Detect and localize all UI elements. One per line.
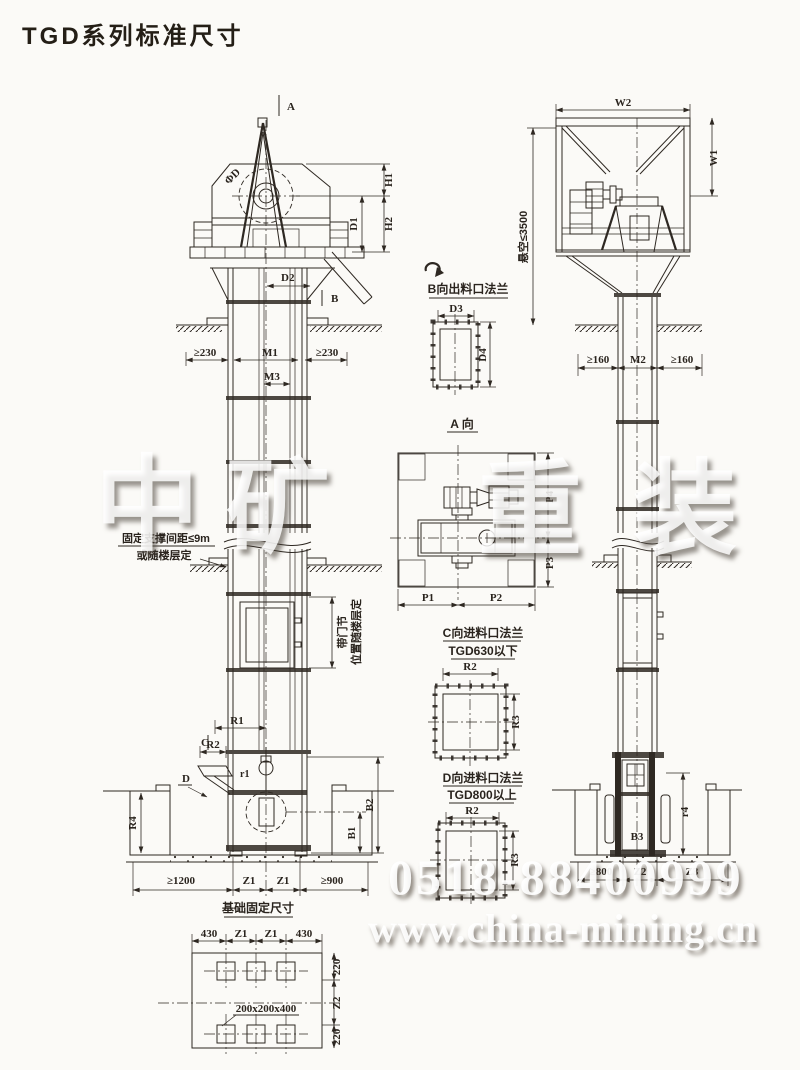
foundation-dim-430b: 430 — [296, 928, 313, 940]
inlet-c-subtitle: TGD630以下 — [448, 644, 517, 658]
foundation-dim-z1a: Z1 — [235, 928, 248, 940]
front-door-section — [240, 597, 336, 668]
side-m2-label: M2 — [630, 354, 646, 366]
front-section-a-label: A — [287, 101, 295, 113]
front-section-b-label: B — [331, 293, 339, 305]
view-a-p1-label: P1 — [422, 592, 434, 604]
view-a-p4-label: P4 — [544, 490, 556, 503]
side-z2-label: Z2 — [634, 866, 647, 878]
inlet-d-subtitle: TGD800以上 — [447, 787, 516, 802]
side-clearance-left-label: ≥160 — [587, 354, 610, 366]
detail-inlet-flange-d: D向进料口法兰 TGD800以上 R2 R3 — [430, 770, 523, 906]
inlet-d-r2-label: R2 — [465, 805, 479, 817]
front-r1-label: R1 — [230, 715, 243, 727]
foundation-dim-z1b: Z1 — [265, 928, 278, 940]
front-view: A B ΦD D1 H1 H2 D2 ≥230 M1 ≥230 M3 固定支撑间… — [103, 95, 395, 896]
anchor-pocket-label: 200x200x400 — [236, 1003, 297, 1015]
side-w1-label: W1 — [708, 150, 720, 167]
door-note-line2: 位置随楼层定 — [349, 599, 363, 665]
front-base-z1a-label: Z1 — [243, 875, 256, 887]
inlet-d-title: D向进料口法兰 — [443, 770, 524, 785]
front-m3-label: M3 — [264, 371, 280, 383]
inlet-c-title: C向进料口法兰 — [443, 625, 524, 640]
front-base-right-label: ≥900 — [321, 875, 344, 887]
front-b2-label: B2 — [364, 798, 376, 811]
front-r2-label: R2 — [206, 739, 220, 751]
side-z3-label: Z3 — [686, 866, 699, 878]
foundation-plan: 基础固定尺寸 430 Z1 Z1 430 200x200x400 220 Z2 … — [158, 900, 343, 1054]
side-base-left-label: ≥800 — [590, 866, 613, 878]
side-b3-label: B3 — [631, 831, 644, 843]
inlet-c-r3-label: R3 — [510, 715, 522, 729]
inlet-d-r3-label: R3 — [509, 853, 521, 867]
view-a-title: A 向 — [450, 416, 474, 431]
front-b1-label: B1 — [346, 827, 358, 840]
front-h1-label: H1 — [383, 173, 395, 187]
detail-view-a: A 向 P4 P3 P1 P2 — [390, 416, 556, 611]
front-d2-label: D2 — [281, 272, 295, 284]
front-clearance-left-label: ≥230 — [194, 347, 217, 359]
foundation-dim-220b: 220 — [331, 1028, 343, 1045]
front-clearance-right-label: ≥230 — [316, 347, 339, 359]
side-w2-label: W2 — [615, 97, 632, 109]
foundation-dim-220a: 220 — [331, 958, 343, 975]
front-d-label: D — [182, 773, 190, 785]
foundation-title: 基础固定尺寸 — [221, 900, 294, 915]
foundation-dim-430a: 430 — [201, 928, 218, 940]
support-note-line2: 或随楼层定 — [137, 548, 192, 562]
foundation-dim-z2: Z2 — [331, 996, 343, 1009]
front-base-left-label: ≥1200 — [167, 875, 196, 887]
outlet-flange-title: B向出料口法兰 — [428, 281, 509, 296]
side-clearance-right-label: ≥160 — [671, 354, 694, 366]
front-r4-label: R4 — [127, 816, 139, 830]
side-boot — [605, 752, 690, 857]
drawing-sheet: TGD系列标准尺寸 — [0, 0, 800, 1070]
technical-drawing: A B ΦD D1 H1 H2 D2 ≥230 M1 ≥230 M3 固定支撑间… — [0, 0, 800, 1070]
side-head-frame — [527, 104, 718, 325]
view-a-p3-label: P3 — [544, 556, 556, 569]
door-note-line1: 带门节 — [335, 616, 349, 649]
front-r1-small-label: r1 — [240, 769, 249, 780]
side-r4-label: r4 — [679, 806, 691, 817]
front-d1-label: D1 — [348, 217, 360, 230]
inlet-c-r2-label: R2 — [463, 661, 477, 673]
outlet-d3-label: D3 — [449, 303, 463, 315]
support-note-line1: 固定支撑间距≤9m — [122, 531, 210, 545]
outlet-d4-label: D4 — [477, 348, 489, 362]
front-h2-label: H2 — [383, 216, 395, 231]
side-pit — [552, 784, 742, 886]
front-m1-label: M1 — [262, 347, 278, 359]
detail-outlet-flange-b: B向出料口法兰 D3 D4 — [426, 263, 509, 395]
view-a-p2-label: P2 — [490, 592, 503, 604]
front-column — [222, 268, 315, 754]
side-suspend-label: 悬空≤3500 — [516, 211, 530, 265]
front-base-z1b-label: Z1 — [277, 875, 290, 887]
detail-inlet-flange-c: C向进料口法兰 TGD630以下 R2 R3 — [428, 625, 523, 766]
